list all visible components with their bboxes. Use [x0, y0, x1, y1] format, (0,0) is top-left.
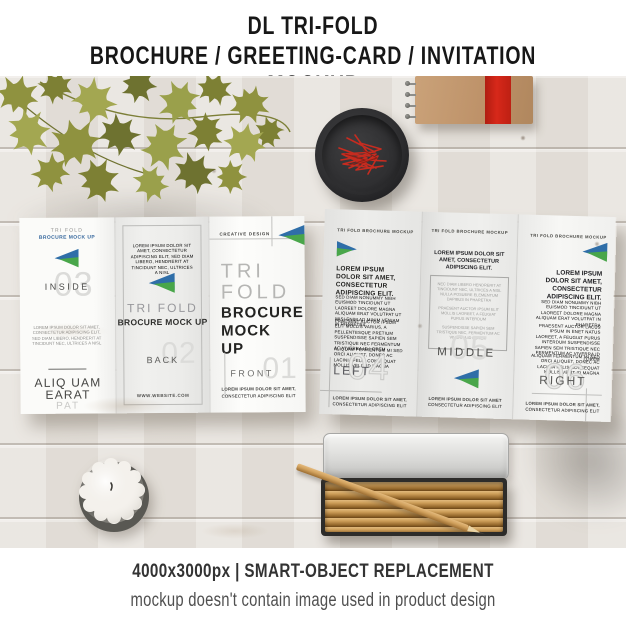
footer-note: mockup doesn't contain image used in pro… — [69, 590, 557, 612]
panel-kicker-blue: BROCURE MOCK UP — [19, 234, 114, 241]
panel-kicker: TRI FOLD BROCHURE MOCKUP — [422, 228, 517, 236]
triangle-play-icon — [277, 225, 305, 245]
pencil-tin-lid — [323, 433, 509, 480]
white-candle — [72, 452, 154, 534]
footer-light: CONSECTETUR ADIPISCING ELIT — [332, 401, 406, 408]
website-url: WWW.WEBSITE.COM — [117, 393, 210, 399]
page-title: DL TRI-FOLD — [69, 12, 557, 41]
subheadline: PAT — [21, 400, 116, 412]
paperclip-bowl — [315, 108, 409, 202]
cover-title-bold: BROCURE — [221, 304, 304, 322]
cover-title-light: TRI — [221, 260, 265, 283]
panel-label: RIGHT — [539, 373, 587, 388]
header-band: DL TRI-FOLD BROCHURE / GREETING-CARD / I… — [0, 0, 626, 76]
footer-light: CONSECTETUR ADIPISCING ELIT — [525, 407, 599, 414]
brand-title-light: TRI FOLD — [116, 301, 209, 316]
panel-label: BACK — [116, 355, 209, 366]
panel-kicker: TRI FOLD — [19, 227, 114, 234]
panel-label: MIDDLE — [419, 346, 514, 361]
panel-label: FRONT — [230, 368, 274, 378]
panel-kicker: TRI FOLD BROCHURE MOCKUP — [530, 233, 607, 240]
brochure-white-trifold: TRI FOLD BROCURE MOCK UP 03 INSIDE LOREM… — [19, 216, 305, 414]
panel-kicker: TRI FOLD BROCHURE MOCKUP — [337, 227, 414, 234]
brand-title-bold: BROCURE MOCK UP — [116, 317, 209, 328]
crop-line — [328, 357, 330, 407]
panel-heading: LOREM IPSUM DOLOR SIT AMET, CONSECTETUR … — [530, 269, 602, 303]
cover-title-light: FOLD — [221, 281, 291, 304]
box-paragraph: NEC DIAM LIBERO HENDRERIT AT TINCIDUNT N… — [434, 281, 504, 303]
panel-label: INSIDE — [20, 281, 115, 292]
maple-leaves — [0, 76, 300, 214]
panel-heading: LOREM IPSUM DOLOR SIT AMET, CONSECTETUR … — [430, 250, 508, 273]
panel-inside: TRI FOLD BROCURE MOCK UP 03 INSIDE LOREM… — [19, 217, 115, 414]
footer-bold: LOREM IPSUM DOLOR SIT AMET, — [222, 386, 296, 392]
triangle-play-icon — [337, 240, 357, 258]
brochure-gray-trifold: TRI FOLD BROCHURE MOCKUP LOREM IPSUM DOL… — [319, 209, 617, 422]
panel-front: CREATIVE DESIGN TRI FOLD BROCURE MOCK UP… — [209, 216, 305, 413]
panel-middle: TRI FOLD BROCHURE MOCKUP LOREM IPSUM DOL… — [416, 212, 519, 420]
divider — [48, 369, 86, 370]
footer-specs: 4000x3000px | SMART-OBJECT REPLACEMENT — [63, 561, 564, 583]
panel-back: LOREM IPSUM DOLOR SIT AMET, CONSECTETUR … — [114, 217, 210, 414]
mockup-presentation: DL TRI-FOLD BROCHURE / GREETING-CARD / I… — [0, 0, 626, 626]
footer-light: CONSECTETUR ADIPISCING ELIT — [222, 393, 296, 399]
intro-text: LOREM IPSUM DOLOR SIT AMET, CONSECTETUR … — [129, 243, 194, 276]
box-paragraph: PRAESENT AUCTOR IPSUM ELIT MOLLIS LAOREE… — [434, 305, 503, 322]
kraft-notebook — [415, 76, 533, 124]
crop-line — [271, 216, 272, 246]
panel-label: LEFT — [333, 363, 371, 378]
notebook-red-band — [485, 76, 511, 124]
footer-band: 4000x3000px | SMART-OBJECT REPLACEMENT m… — [0, 548, 626, 626]
binding-screw-icon — [406, 92, 415, 97]
panel-left: TRI FOLD BROCHURE MOCKUP LOREM IPSUM DOL… — [319, 209, 422, 417]
bowl-rim — [322, 115, 402, 195]
triangle-play-icon — [149, 273, 175, 293]
mockup-photo: TRI FOLD BROCURE MOCK UP 03 INSIDE LOREM… — [0, 76, 626, 548]
triangle-play-icon — [453, 369, 480, 389]
tagline: CREATIVE DESIGN — [219, 231, 269, 236]
text-box: LOREM IPSUM DOLOR SIT AMET, CONSECTETUR … — [28, 320, 105, 350]
panel-right: TRI FOLD BROCHURE MOCKUP LOREM IPSUM DOL… — [513, 214, 616, 422]
triangle-play-icon — [582, 242, 609, 262]
cover-title-bold: MOCK — [221, 322, 271, 339]
binding-screw-icon — [406, 81, 415, 86]
